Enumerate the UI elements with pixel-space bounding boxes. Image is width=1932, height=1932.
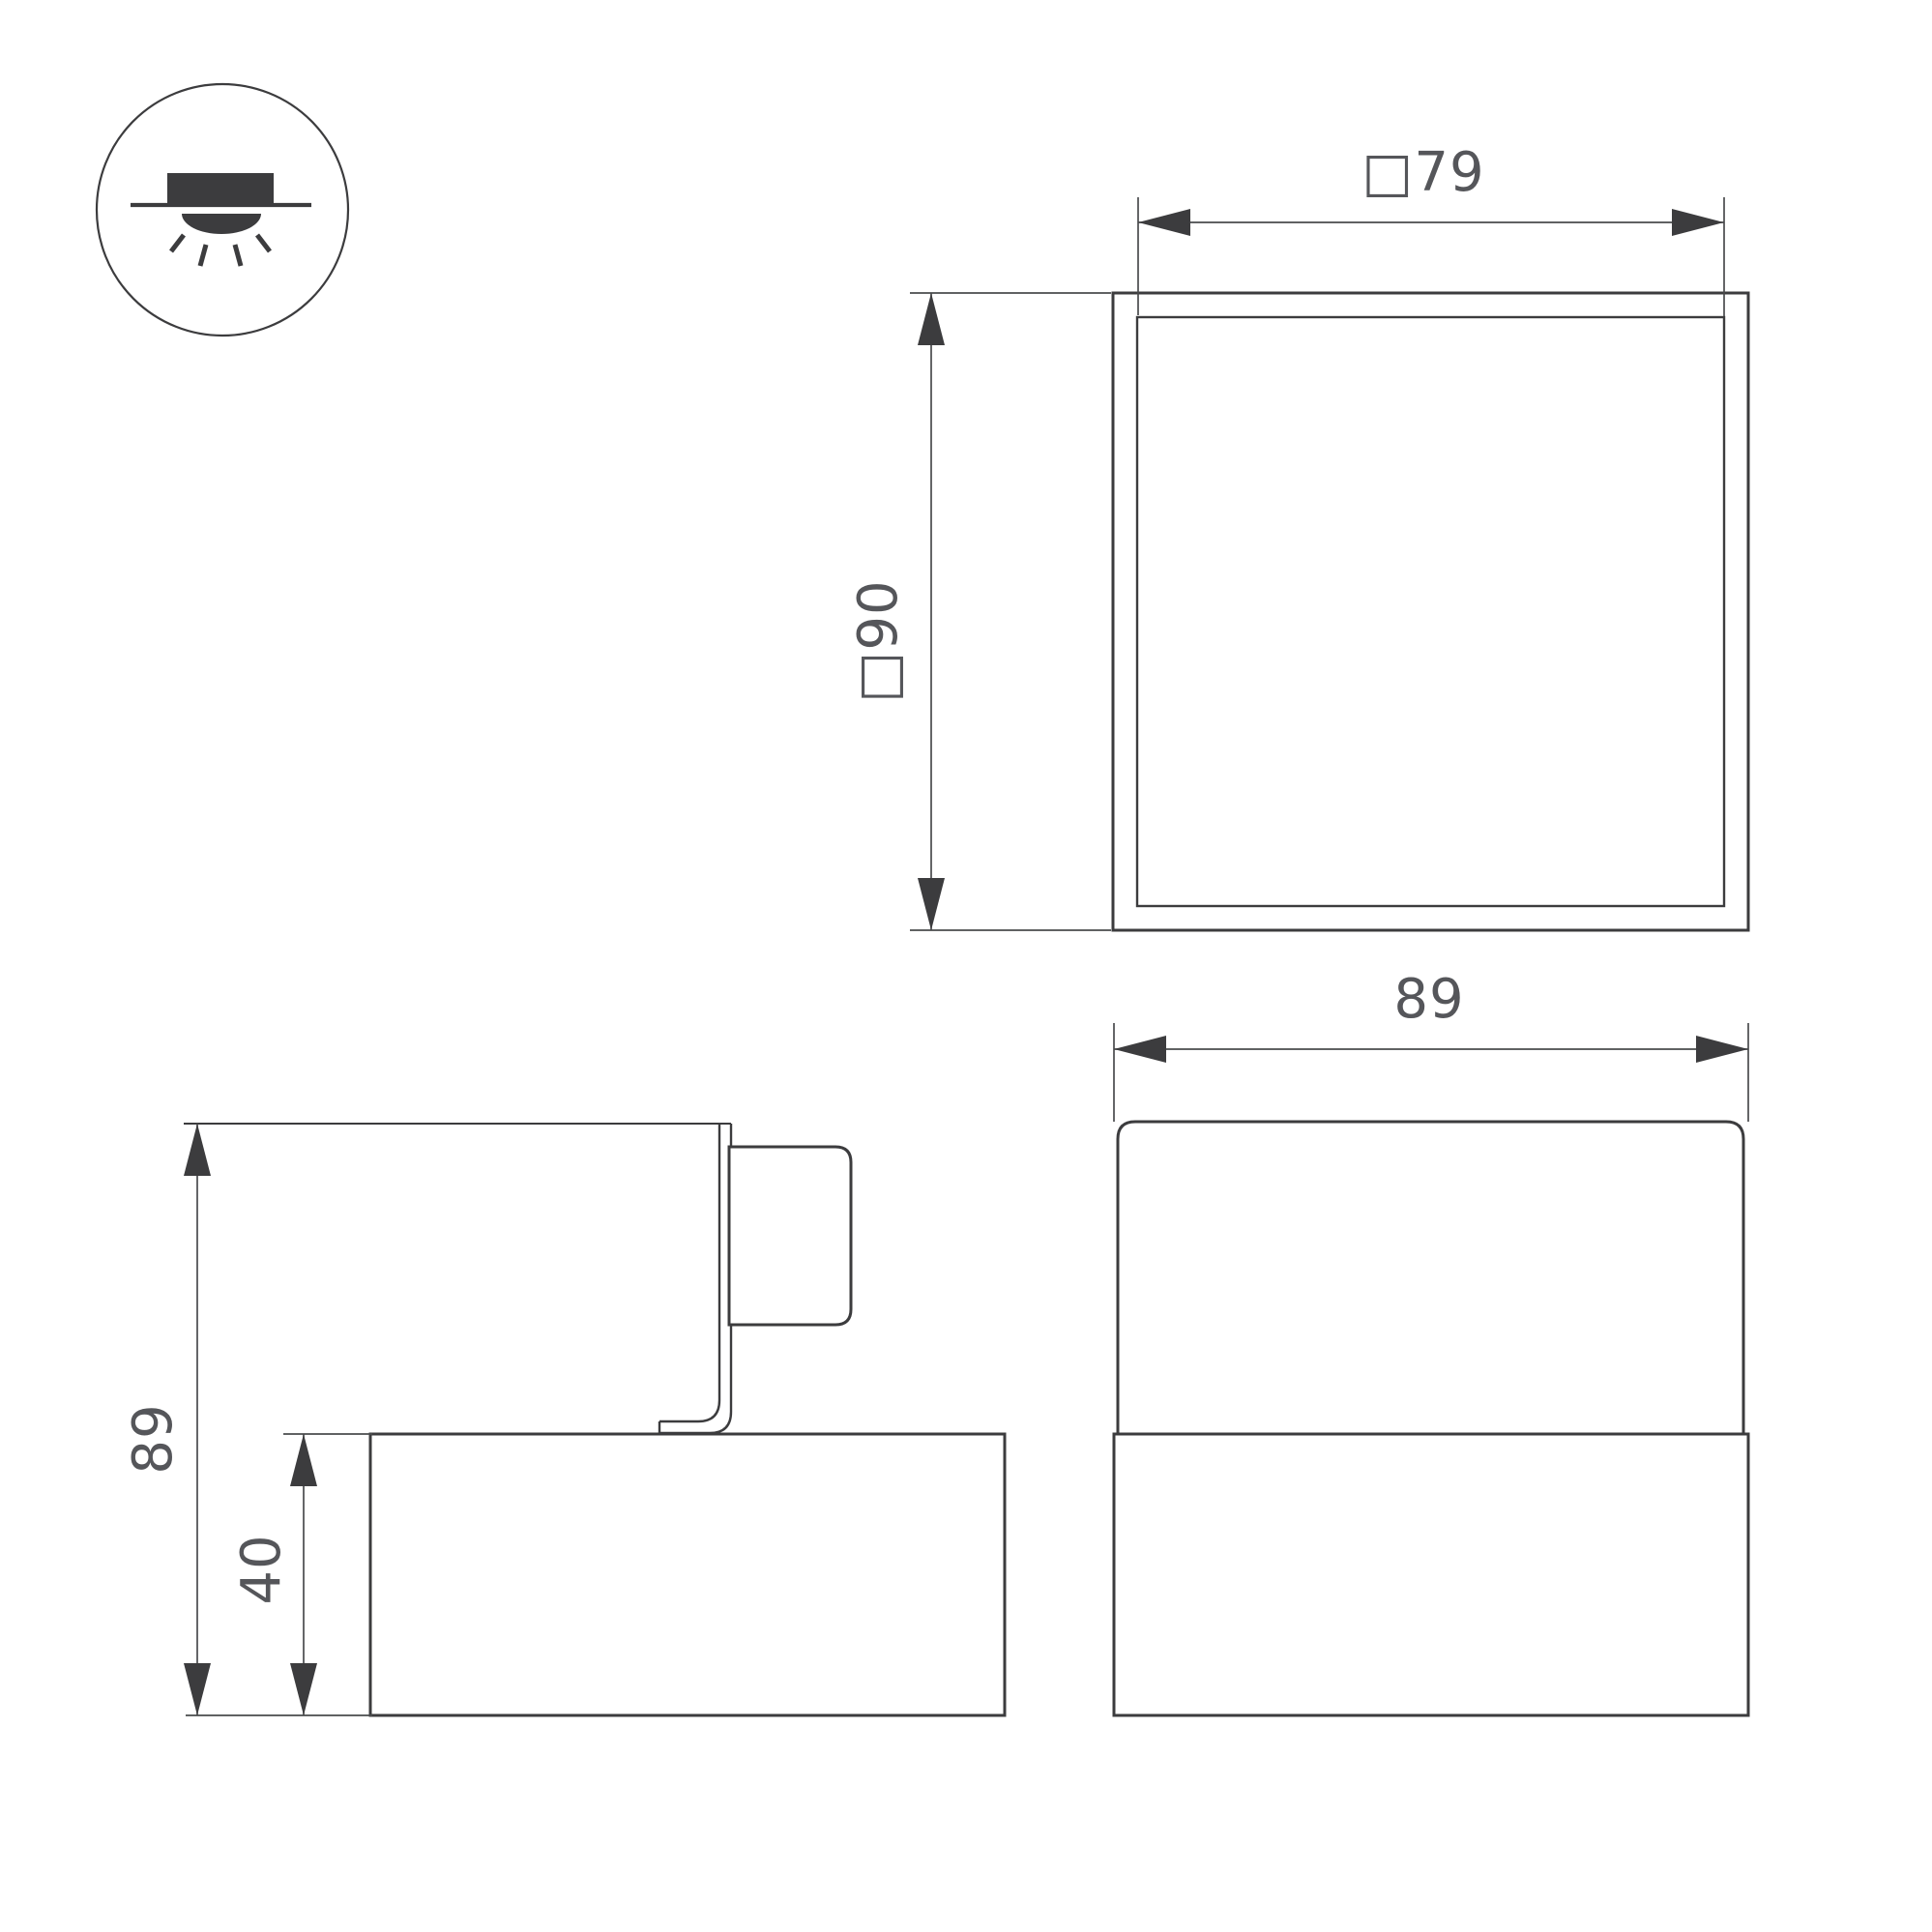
arrowhead-right: [1696, 1036, 1748, 1063]
icon-fixture-body: [167, 173, 274, 205]
arrowhead-right: [1672, 209, 1724, 236]
top-view-height-dimension: □90: [847, 293, 1111, 930]
dimension-label: 89: [1393, 968, 1464, 1031]
arrowhead-up: [290, 1434, 317, 1486]
luminaire-dimension-drawing: □79 □90: [0, 0, 1932, 1932]
side-view-connector-box: [729, 1147, 851, 1325]
arrowhead-left: [1114, 1036, 1166, 1063]
arrowhead-down: [184, 1663, 211, 1715]
dimension-label: □90: [847, 579, 910, 702]
arrowhead-up: [918, 293, 945, 345]
side-view-base-dimension: 40: [230, 1434, 317, 1715]
front-view: 89: [1114, 968, 1748, 1715]
dimension-drawing-canvas: □79 □90: [0, 0, 1932, 1932]
arrowhead-down: [290, 1663, 317, 1715]
front-view-head-block: [1118, 1122, 1743, 1434]
dimension-label: □79: [1361, 141, 1484, 204]
arrowhead-up: [184, 1124, 211, 1176]
arrowhead-left: [1138, 209, 1190, 236]
top-view: □79 □90: [847, 141, 1748, 930]
dimension-label: 89: [122, 1403, 185, 1474]
side-view-body-block: [370, 1434, 1005, 1715]
top-view-outer-outline: [1113, 293, 1748, 930]
icon-circle-border: [97, 84, 348, 336]
bracket-inner-edge: [659, 1124, 719, 1421]
front-view-body-block: [1114, 1434, 1748, 1715]
side-view: 89 40: [122, 1124, 1005, 1715]
side-view-mounting-bracket: [659, 1124, 731, 1433]
arrowhead-down: [918, 878, 945, 930]
surface-mounted-downlight-icon: [97, 84, 348, 336]
top-view-width-dimension: □79: [1138, 141, 1724, 316]
front-view-width-dimension: 89: [1114, 968, 1748, 1122]
side-view-height-dimension: 89: [122, 1124, 211, 1715]
dimension-label: 40: [230, 1534, 293, 1604]
